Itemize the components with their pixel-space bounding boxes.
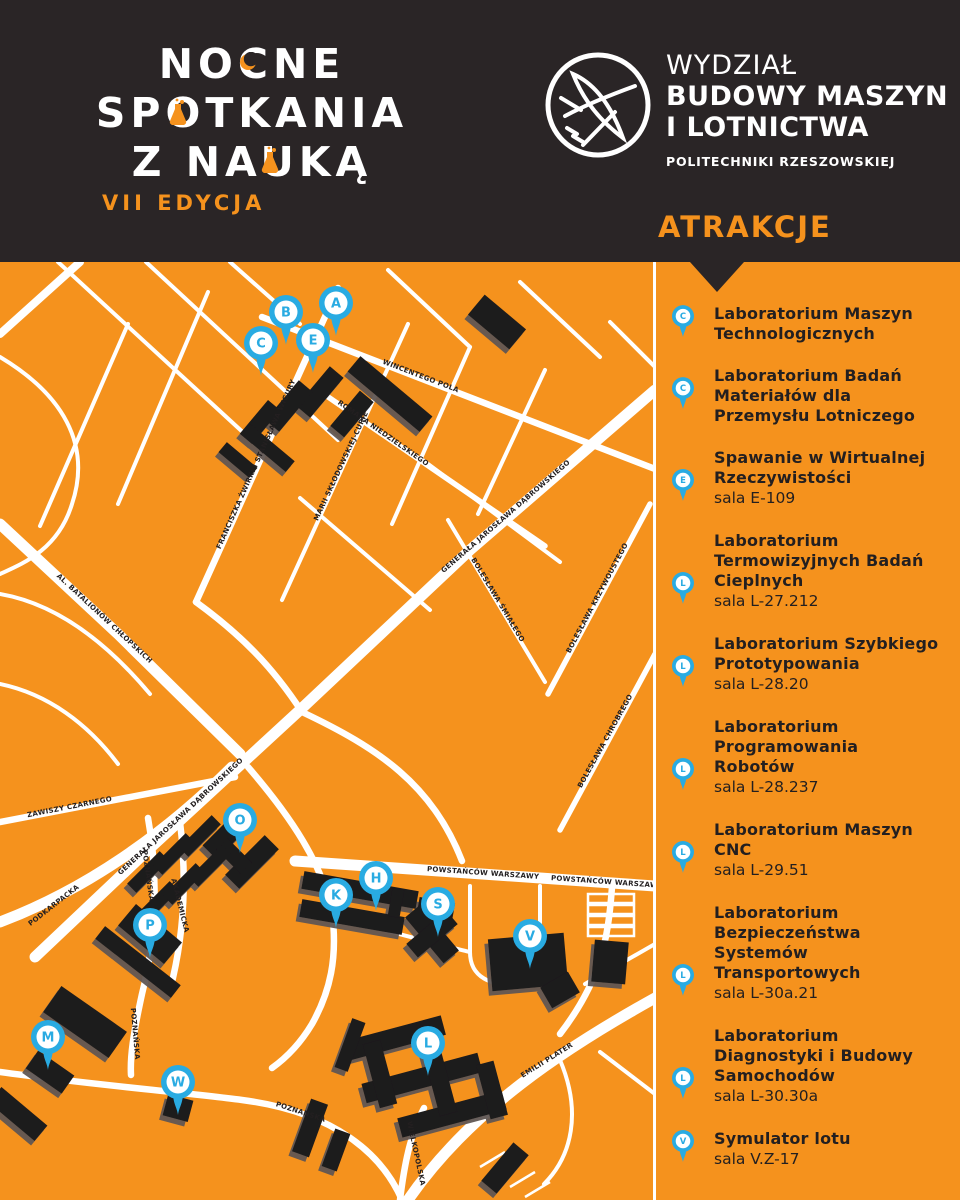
attraction-room: sala V.Z-17 [714,1149,952,1170]
attraction-title: Laboratorium Badań Materiałów dla Przemy… [714,366,952,426]
pin-letter: M [42,1031,55,1046]
street-label: AL. BATALIONÓW CHŁOPSKICH [55,571,155,665]
pin-letter: L [424,1037,432,1052]
logo-line-2: SPOTKANIA [62,89,442,138]
street-label: BOLESŁAWA CHROBREGO [576,693,634,789]
street-label: BOLESŁAWA KRZYWOUSTEGO [565,542,630,655]
poster: NOCNE SPOTKANIA Z NAUKĄ VII EDYCJA [0,0,960,1200]
pin-letter: E [309,334,318,349]
svg-text:L: L [680,765,686,775]
pin-letter: S [433,898,442,913]
attraction-room: sala L-30.30a [714,1086,952,1107]
attraction-text: Laboratorium Maszyn CNCsala L-29.51 [714,820,952,881]
pin-letter: W [171,1076,185,1091]
svg-text:L: L [680,662,686,672]
attraction-item: LLaboratorium Szybkiego Prototypowaniasa… [670,634,952,695]
pin-letter: K [331,889,342,904]
attractions-heading: ATRAKCJE [658,210,832,244]
location-pin-icon: V [670,1128,696,1164]
faculty-line-3: I LOTNICTWA [666,112,948,143]
location-pin-icon: E [670,467,696,503]
pin-letter: B [281,306,291,321]
svg-text:L: L [680,1074,686,1084]
attraction-room: sala E-109 [714,488,952,509]
buildings [0,295,629,1194]
svg-text:L: L [680,579,686,589]
attraction-title: Laboratorium Szybkiego Prototypowania [714,634,952,674]
location-pin-icon: L [670,839,696,875]
location-pin-icon: L [670,756,696,792]
attraction-item: LLaboratorium Bezpieczeństwa Systemów Tr… [670,903,952,1004]
event-logo: NOCNE SPOTKANIA Z NAUKĄ VII EDYCJA [62,40,442,215]
location-pin-icon: L [670,1065,696,1101]
attraction-room: sala L-30a.21 [714,983,952,1004]
campus-map: WINCENTEGO POLAROMANA NIEDZIELSKIEGOFRAN… [0,262,655,1200]
map-pin-C[interactable]: C [244,326,278,376]
attraction-item: CLaboratorium Maszyn Technologicznych [670,304,952,344]
attractions-list: CLaboratorium Maszyn TechnologicznychCLa… [670,304,952,1170]
logo-line-3: Z NAUKĄ [62,138,442,187]
attraction-title: Laboratorium Bezpieczeństwa Systemów Tra… [714,903,952,983]
attraction-room: sala L-28.237 [714,777,952,798]
attraction-text: Laboratorium Diagnostyki i Budowy Samoch… [714,1026,952,1107]
attraction-title: Laboratorium Programowania Robotów [714,717,952,777]
pin-letter: V [525,930,535,945]
attraction-text: Laboratorium Bezpieczeństwa Systemów Tra… [714,903,952,1004]
attraction-text: Symulator lotusala V.Z-17 [714,1129,952,1170]
svg-text:L: L [680,971,686,981]
streets [0,262,655,1200]
attraction-text: Laboratorium Szybkiego Prototypowaniasal… [714,634,952,695]
pin-letter: A [331,297,341,312]
logo-line-1: NOCNE [62,40,442,89]
attraction-item: LLaboratorium Maszyn CNCsala L-29.51 [670,820,952,881]
svg-text:C: C [680,384,686,394]
edition-label: VII EDYCJA [102,191,442,215]
attractions-sidebar: CLaboratorium Maszyn TechnologicznychCLa… [653,262,960,1200]
attraction-title: Laboratorium Maszyn Technologicznych [714,304,952,344]
svg-text:E: E [680,476,686,486]
attraction-text: Laboratorium Programowania Robotówsala L… [714,717,952,798]
svg-text:L: L [680,848,686,858]
attraction-item: LLaboratorium Programowania Robotówsala … [670,717,952,798]
attraction-room: sala L-27.212 [714,591,952,612]
street-label: BOLESŁAWA ŚMIAŁEGO [469,556,527,644]
pin-letter: P [145,919,155,934]
attraction-room: sala L-28.20 [714,674,952,695]
location-pin-icon: C [670,303,696,339]
location-pin-icon: C [670,375,696,411]
attraction-item: LLaboratorium Diagnostyki i Budowy Samoc… [670,1026,952,1107]
faculty-line-4: POLITECHNIKI RZESZOWSKIEJ [666,146,948,177]
pointer-triangle [690,262,744,292]
svg-text:C: C [680,312,686,322]
faculty-logo-plane-icon [543,50,653,160]
street-label: ZAWISZY CZARNEGO [26,795,112,819]
pin-letter: H [371,872,382,887]
location-pin-icon: L [670,962,696,998]
attraction-item: LLaboratorium Termowizyjnych Badań Ciepl… [670,531,952,612]
attraction-title: Laboratorium Maszyn CNC [714,820,952,860]
faculty-name: WYDZIAŁ BUDOWY MASZYN I LOTNICTWA POLITE… [666,50,948,177]
attraction-item: CLaboratorium Badań Materiałów dla Przem… [670,366,952,426]
pin-letter: O [234,814,245,829]
faculty-line-2: BUDOWY MASZYN [666,81,948,112]
attraction-title: Spawanie w Wirtualnej Rzeczywistości [714,448,952,488]
faculty-line-1: WYDZIAŁ [666,50,948,81]
attraction-text: Laboratorium Termowizyjnych Badań Ciepln… [714,531,952,612]
attraction-text: Laboratorium Maszyn Technologicznych [714,304,952,344]
attraction-title: Symulator lotu [714,1129,952,1149]
attraction-text: Laboratorium Badań Materiałów dla Przemy… [714,366,952,426]
attraction-item: VSymulator lotusala V.Z-17 [670,1129,952,1170]
svg-text:V: V [680,1137,687,1147]
header: NOCNE SPOTKANIA Z NAUKĄ VII EDYCJA [0,0,960,262]
attraction-item: ESpawanie w Wirtualnej Rzeczywistościsal… [670,448,952,509]
location-pin-icon: L [670,653,696,689]
attraction-title: Laboratorium Diagnostyki i Budowy Samoch… [714,1026,952,1086]
attraction-title: Laboratorium Termowizyjnych Badań Ciepln… [714,531,952,591]
attraction-text: Spawanie w Wirtualnej Rzeczywistościsala… [714,448,952,509]
location-pin-icon: L [670,570,696,606]
attraction-room: sala L-29.51 [714,860,952,881]
pin-letter: C [256,337,266,352]
